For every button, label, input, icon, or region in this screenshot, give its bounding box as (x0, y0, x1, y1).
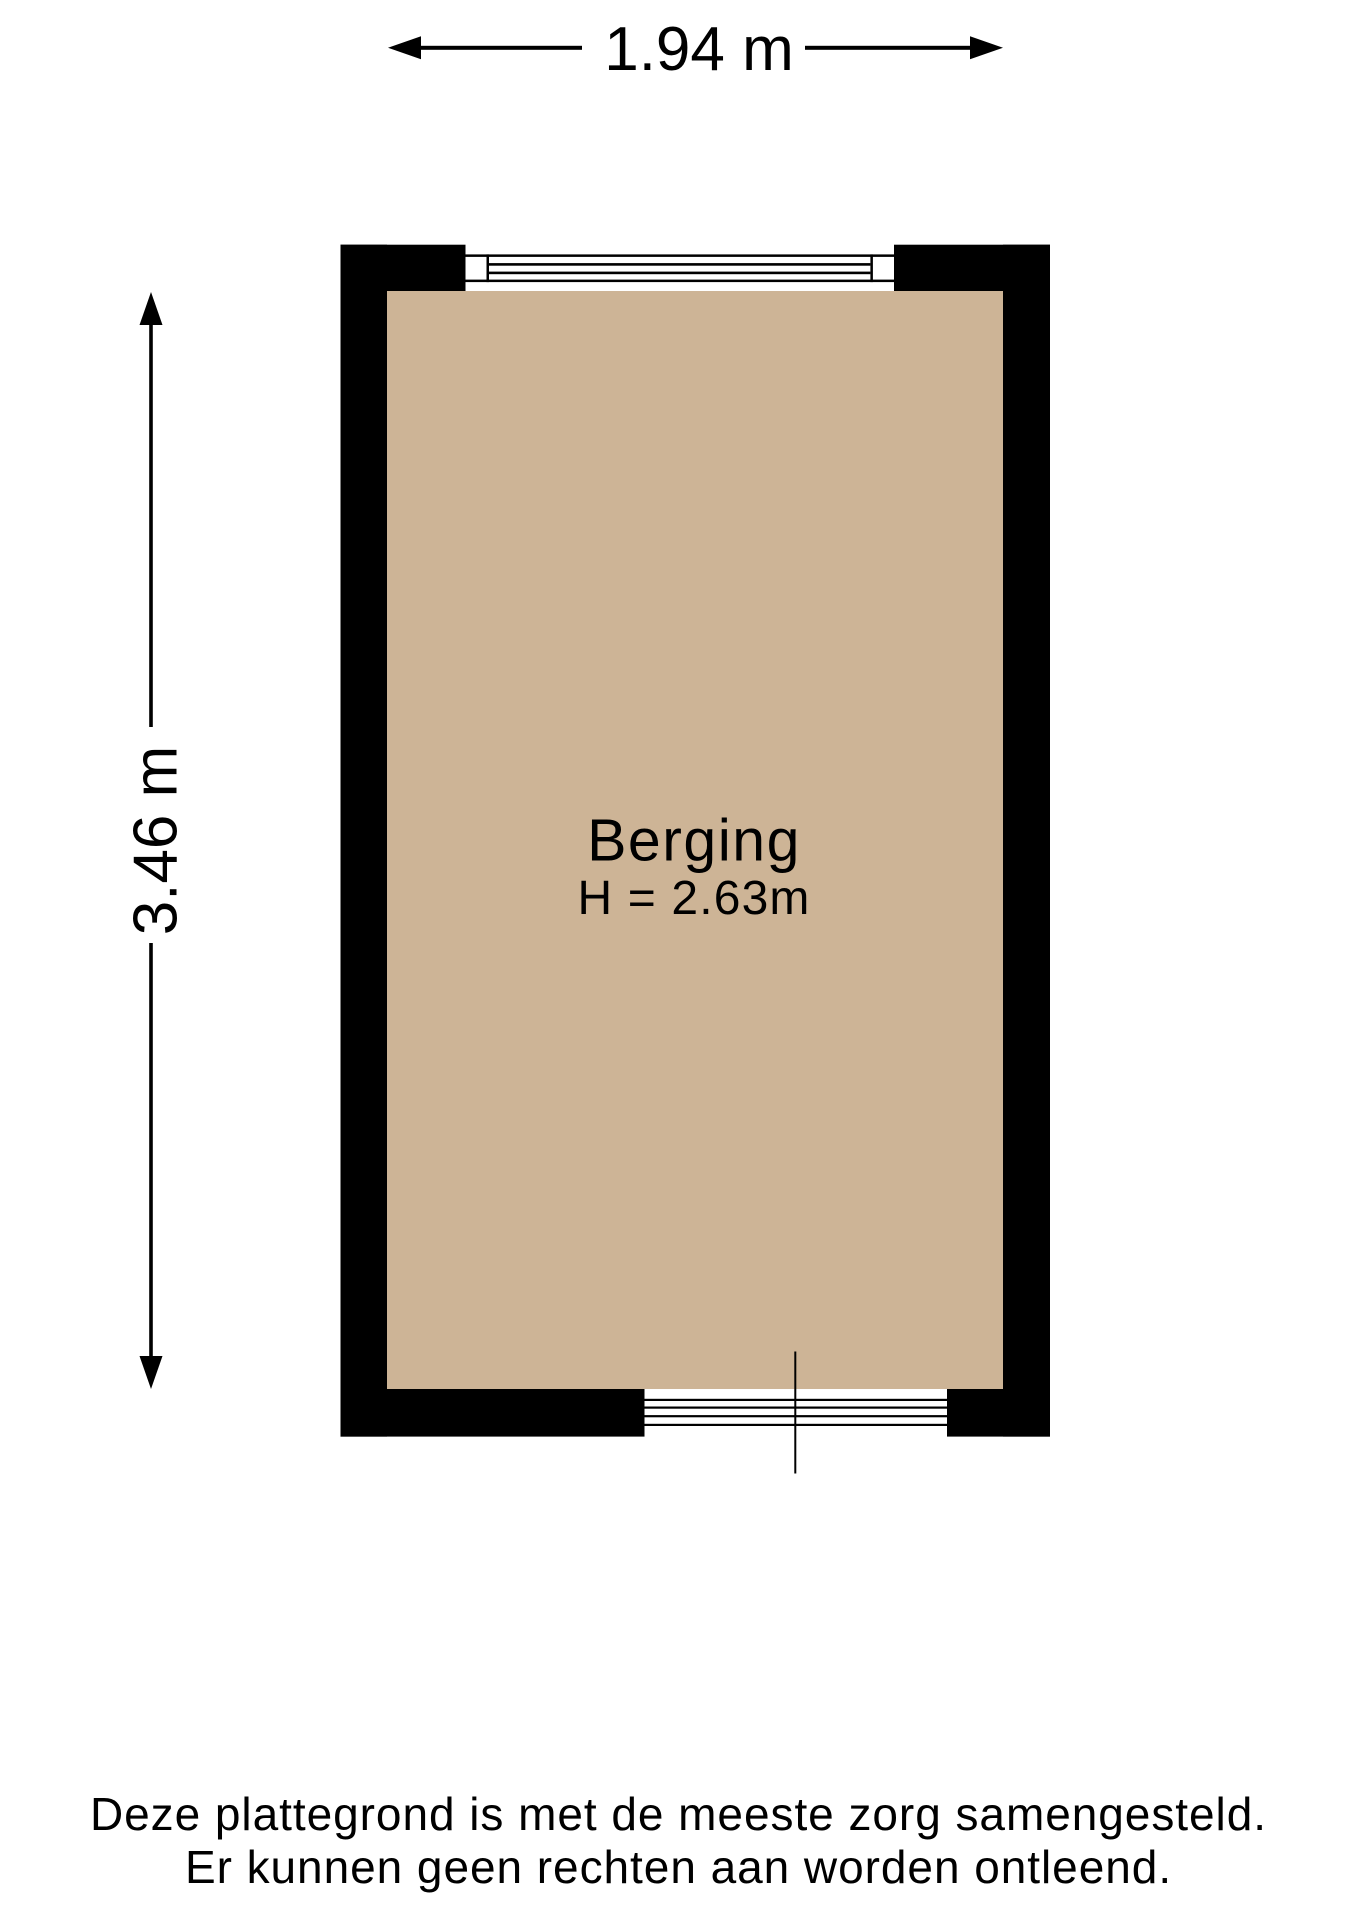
svg-text:3.46 m: 3.46 m (122, 746, 191, 936)
svg-text:1.94 m: 1.94 m (604, 15, 794, 84)
svg-text:H = 2.63m: H = 2.63m (577, 872, 810, 925)
svg-text:Deze plattegrond is met de mee: Deze plattegrond is met de meeste zorg s… (90, 1788, 1267, 1840)
svg-text:Er kunnen geen rechten aan wor: Er kunnen geen rechten aan worden ontlee… (185, 1841, 1172, 1893)
svg-text:Berging: Berging (587, 807, 801, 873)
